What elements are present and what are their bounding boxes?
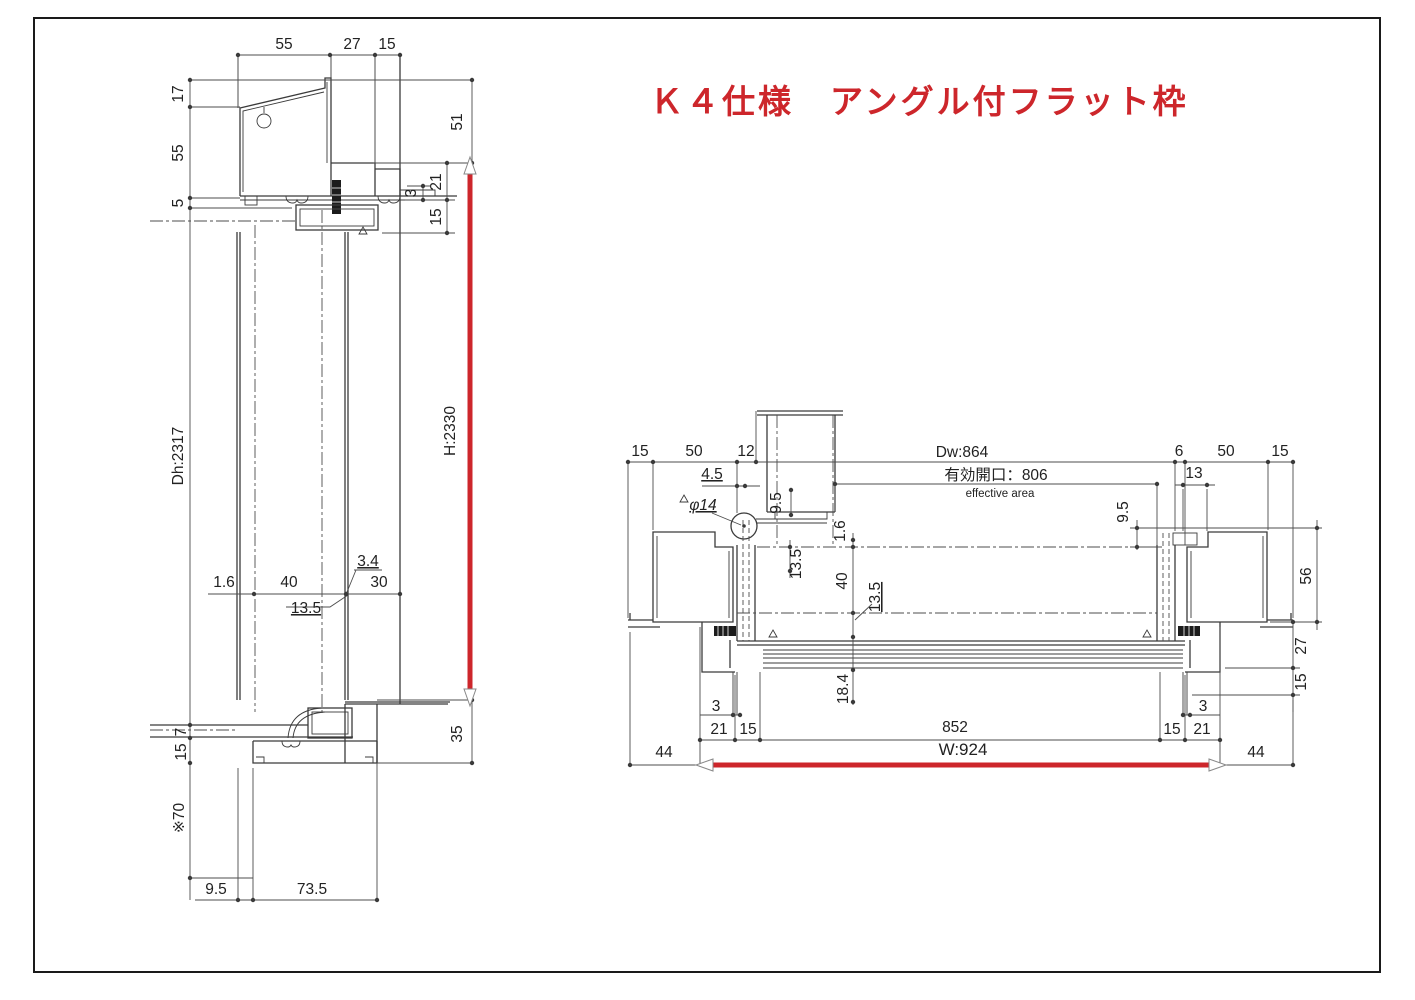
dim-label: Dh:2317 — [170, 427, 187, 486]
dim-label: 50 — [685, 443, 703, 460]
dim-label: 13.5 — [291, 600, 321, 617]
dim-label: 21 — [710, 721, 727, 738]
height-arrow-bottom-icon — [464, 689, 476, 706]
dim-label: W:924 — [939, 740, 988, 759]
dim-label: 51 — [449, 113, 466, 130]
height-arrow-top-icon — [464, 157, 476, 174]
drawing-sheet: Ｋ４仕様 アングル付フラット枠 552715175555132115Dh:231… — [0, 0, 1415, 1000]
dim-label: 15 — [378, 36, 395, 53]
dim-label: 15 — [1271, 443, 1288, 460]
dim-label: 21 — [428, 173, 445, 190]
dim-label: 13.5 — [788, 549, 805, 579]
dim-label: 40 — [280, 574, 298, 591]
dim-label: 15 — [631, 443, 648, 460]
dim-label: 7 — [173, 728, 190, 737]
vertical-section-labels: 552715175555132115Dh:2317H:23301.6403.43… — [170, 36, 466, 898]
dim-label: 40 — [834, 572, 851, 590]
dim-label: 44 — [655, 744, 673, 761]
dim-label: 27 — [343, 36, 360, 53]
dim-label: effective area — [966, 488, 1035, 500]
dim-label: Dw:864 — [936, 444, 989, 461]
dim-label: 15 — [1293, 673, 1310, 690]
dim-label: 50 — [1217, 443, 1235, 460]
dim-label: 有効開口：806 — [944, 466, 1047, 484]
dimension-dots — [188, 53, 1319, 902]
dim-label: 1.6 — [832, 520, 849, 542]
dim-label: 3.4 — [357, 553, 379, 570]
dim-label: 1.6 — [213, 574, 235, 591]
dim-label: 5 — [170, 199, 187, 208]
dim-label: 9.5 — [768, 492, 785, 514]
dim-label: 55 — [275, 36, 292, 53]
dim-label: 27 — [1293, 637, 1310, 654]
dim-label: 56 — [1298, 567, 1315, 584]
dim-label: H:2330 — [442, 406, 459, 456]
dim-label: 73.5 — [297, 881, 327, 898]
dim-label: 852 — [942, 719, 968, 736]
dim-label: 18.4 — [835, 674, 852, 705]
dim-label: 3 — [403, 189, 420, 198]
dim-label: 15 — [1163, 721, 1180, 738]
cad-canvas: Ｋ４仕様 アングル付フラット枠 552715175555132115Dh:231… — [0, 0, 1415, 1000]
dim-label: 4.5 — [701, 466, 723, 483]
dim-label: 15 — [739, 721, 756, 738]
width-arrow-left-icon — [696, 759, 713, 771]
vertical-section-linework — [150, 55, 457, 763]
dim-label: 13 — [1185, 465, 1202, 482]
dim-label: 12 — [737, 443, 754, 460]
dim-label: 3 — [1199, 698, 1208, 715]
drawing-title: Ｋ４仕様 アングル付フラット枠 — [650, 83, 1189, 120]
dim-label: 44 — [1247, 744, 1265, 761]
dim-label: 9.5 — [205, 881, 227, 898]
sheet-border — [34, 18, 1380, 972]
dim-label: 15 — [173, 743, 190, 760]
dim-label: φ14 — [689, 497, 717, 514]
dim-label: 3 — [712, 698, 721, 715]
dim-label: 35 — [449, 725, 466, 742]
dim-label: 15 — [428, 208, 445, 225]
width-arrow-right-icon — [1209, 759, 1226, 771]
dim-label: 17 — [170, 85, 187, 102]
dim-label: ※70 — [171, 803, 188, 834]
dim-label: 21 — [1193, 721, 1210, 738]
dim-label: 55 — [170, 144, 187, 161]
dim-label: 9.5 — [1115, 501, 1132, 523]
dim-label: 30 — [370, 574, 388, 591]
dim-label: 13.5 — [867, 582, 884, 612]
dim-label: 6 — [1175, 443, 1184, 460]
